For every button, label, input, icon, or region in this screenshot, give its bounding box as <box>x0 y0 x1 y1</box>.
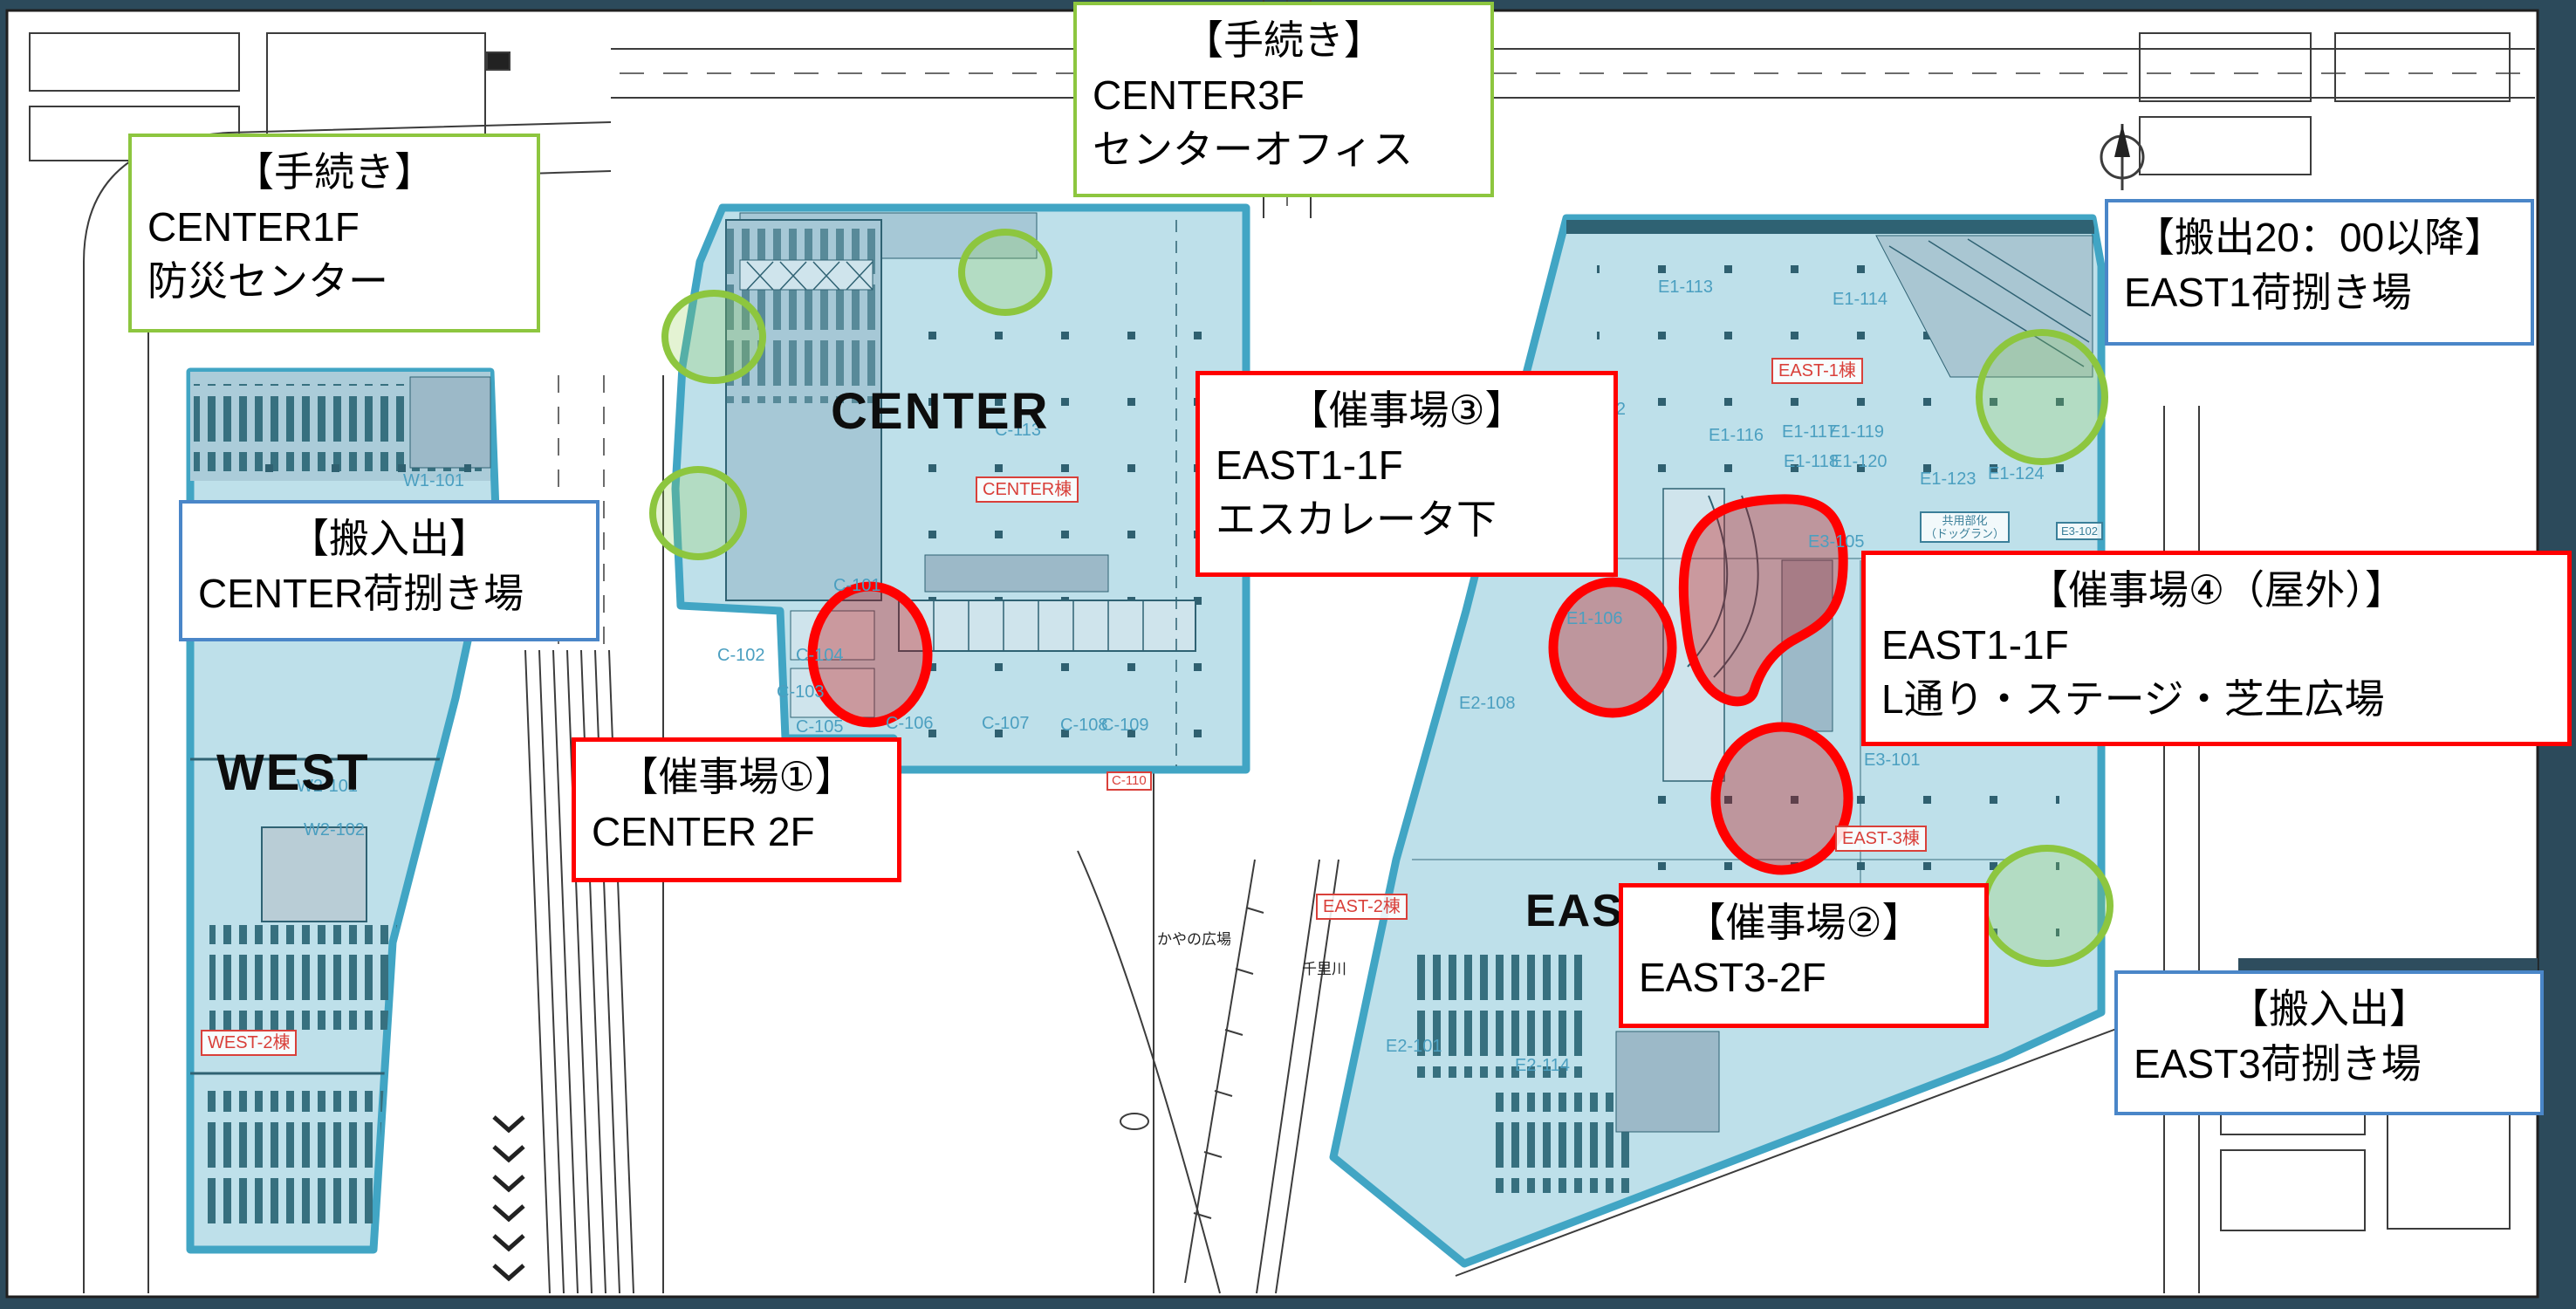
callout-title: 【催事場③】 <box>1200 375 1613 438</box>
room-label-E1-124: E1-124 <box>1988 464 2045 484</box>
callout-line: CENTER1F <box>132 200 537 254</box>
callout-line: CENTER 2F <box>576 805 897 859</box>
callout-line: EAST3荷捌き場 <box>2118 1037 2540 1091</box>
callout-line: EAST3-2F <box>1623 950 1984 1004</box>
tag-east1-building: EAST-1棟 <box>1771 358 1863 384</box>
room-label-C-104: C-104 <box>796 646 843 666</box>
room-label-E2-108: E2-108 <box>1459 694 1516 714</box>
callout-procedure-center3f: 【手続き】 CENTER3F センターオフィス <box>1073 2 1494 197</box>
room-label-W1-101: W1-101 <box>403 471 464 491</box>
area-label-west: WEST <box>216 744 370 802</box>
callout-title: 【催事場①】 <box>576 742 897 805</box>
tag-center-building: CENTER棟 <box>976 476 1079 503</box>
text-kayano-plaza: かやの広場 <box>1157 927 1231 949</box>
callout-line: EAST1-1F <box>1200 438 1613 492</box>
callout-event4-outdoor: 【催事場④（屋外）】 EAST1-1F L通り・ステージ・芝生広場 <box>1861 551 2572 746</box>
tag-west2-building: WEST-2棟 <box>201 1030 297 1056</box>
room-label-E1-113: E1-113 <box>1658 278 1713 298</box>
highlight-green-center-west-circle <box>653 469 743 557</box>
callout-event3-east1-1f: 【催事場③】 EAST1-1F エスカレータ下 <box>1196 371 1618 577</box>
tag-e3-102: E3-102 <box>2056 522 2103 540</box>
room-label-C-107: C-107 <box>982 714 1029 734</box>
callout-line: エスカレータ下 <box>1200 492 1613 546</box>
highlight-green-center-nw-circle <box>665 293 763 380</box>
room-label-E2-101: E2-101 <box>1386 1037 1442 1057</box>
callout-event2-east3-2f: 【催事場②】 EAST3-2F <box>1619 883 1989 1028</box>
tag-east3-building: EAST-3棟 <box>1835 826 1927 852</box>
callout-title: 【搬入出】 <box>2118 974 2540 1037</box>
highlight-red-event3-circle <box>1553 582 1672 713</box>
callout-title: 【搬出20：00以降】 <box>2108 202 2531 265</box>
room-label-E1-119: E1-119 <box>1829 422 1884 442</box>
area-label-center: CENTER <box>831 382 1049 441</box>
callout-title: 【催事場②】 <box>1623 888 1984 950</box>
callout-moveinout-center: 【搬入出】 CENTER荷捌き場 <box>179 500 599 641</box>
text-senri-river: 千里川 <box>1302 956 1346 978</box>
room-label-E2-114: E2-114 <box>1515 1056 1570 1076</box>
room-label-E1-106: E1-106 <box>1566 609 1623 629</box>
callout-line: EAST1荷捌き場 <box>2108 265 2531 319</box>
room-label-E1-120: E1-120 <box>1831 452 1887 472</box>
room-label-E3-101: E3-101 <box>1864 750 1921 771</box>
highlight-red-event2-circle <box>1716 727 1848 870</box>
highlight-green-east3-loading-circle <box>1984 848 2110 963</box>
tag-dog-run: 共用部化 （ドッグラン） <box>1920 511 2010 543</box>
callout-line: L通り・ステージ・芝生広場 <box>1866 672 2567 726</box>
callout-title: 【手続き】 <box>1077 5 1490 68</box>
room-label-C-109: C-109 <box>1101 716 1148 736</box>
callout-procedure-center1f: 【手続き】 CENTER1F 防災センター <box>128 134 540 332</box>
callout-line: CENTER荷捌き場 <box>182 566 596 620</box>
highlight-green-center3f-office-circle <box>962 232 1049 312</box>
room-label-E3-105: E3-105 <box>1808 532 1865 552</box>
callout-line: 防災センター <box>132 254 537 308</box>
room-label-C-102: C-102 <box>717 646 764 666</box>
callout-title: 【搬入出】 <box>182 504 596 566</box>
callout-title: 【催事場④（屋外）】 <box>1866 555 2567 618</box>
room-label-E1-123: E1-123 <box>1920 469 1977 490</box>
room-label-W2-102: W2-102 <box>304 820 365 840</box>
callout-line: EAST1-1F <box>1866 618 2567 672</box>
callout-line: CENTER3F <box>1077 68 1490 122</box>
callout-moveout-east1: 【搬出20：00以降】 EAST1荷捌き場 <box>2105 199 2534 346</box>
tag-east2-building: EAST-2棟 <box>1316 894 1408 920</box>
callout-title: 【手続き】 <box>132 137 537 200</box>
room-label-C-105: C-105 <box>796 717 843 737</box>
site-map-page: { "callouts": { "procedure_center3f": {"… <box>0 0 2576 1309</box>
callout-event1-center2f: 【催事場①】 CENTER 2F <box>572 737 901 882</box>
room-label-E1-114: E1-114 <box>1833 290 1887 310</box>
room-label-C-106: C-106 <box>886 714 933 734</box>
room-label-C-103: C-103 <box>777 682 824 702</box>
callout-moveinout-east3: 【搬入出】 EAST3荷捌き場 <box>2114 970 2544 1115</box>
highlight-green-east1-loading-circle <box>1979 332 2105 462</box>
tag-c110: C-110 <box>1106 771 1152 791</box>
callout-line: センターオフィス <box>1077 122 1490 176</box>
room-label-C-101: C-101 <box>833 576 880 596</box>
room-label-E1-116: E1-116 <box>1709 426 1764 446</box>
